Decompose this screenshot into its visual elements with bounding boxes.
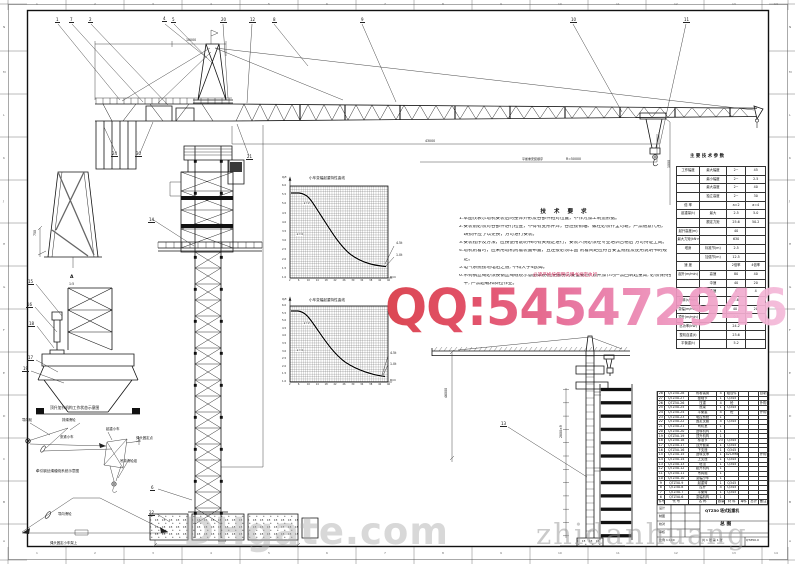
table-cell: 外购 bbox=[759, 410, 768, 415]
zone-label: B bbox=[3, 501, 5, 504]
tiny-label: a=2 bbox=[303, 322, 310, 325]
tech-notes-title: 技 术 要 求 bbox=[459, 207, 671, 215]
tiny-label: 1000 bbox=[668, 160, 671, 168]
tiny-label: 必须严格按使用说明书规定执行 bbox=[533, 274, 597, 279]
callout-number: 14 bbox=[148, 218, 155, 223]
watermark-dhgate: DHgate.com bbox=[183, 510, 449, 553]
callout-number: 7 bbox=[69, 18, 74, 23]
zone-label: M bbox=[789, 71, 792, 74]
tiny-label: Q/t bbox=[282, 298, 287, 301]
table-cell: 代 号 bbox=[664, 500, 688, 505]
table-cell: 30 bbox=[746, 192, 766, 201]
table-cell: 标准节(m) bbox=[700, 244, 727, 253]
zone-label: J bbox=[789, 200, 790, 203]
zone-label: F bbox=[789, 329, 791, 332]
tiny-label: 1.0t bbox=[396, 254, 402, 257]
table-cell: 2~ bbox=[726, 167, 746, 176]
zone-label: 2 bbox=[94, 3, 96, 6]
watermark-seller: zhidanhuang bbox=[536, 517, 748, 551]
zone-label: 10 bbox=[558, 552, 562, 555]
zone-label: E bbox=[3, 372, 5, 375]
axis-tick: 1.0 bbox=[282, 277, 286, 280]
table-cell: 备注 bbox=[759, 500, 768, 505]
table-cell: 最大 bbox=[700, 210, 727, 219]
table-cell: 高速 bbox=[700, 270, 727, 279]
zone-label: 9 bbox=[500, 552, 502, 555]
axis-tick: 42 bbox=[378, 280, 381, 282]
tiny-label: 4.5t bbox=[390, 352, 396, 355]
axis-tick: 1.0 bbox=[282, 381, 286, 384]
axis-tick: 2 bbox=[289, 384, 291, 386]
table-cell: 最大力矩(kN·m) bbox=[677, 236, 700, 245]
callout-number: 5 bbox=[171, 18, 176, 23]
tiny-label: QTZ50.0 bbox=[746, 539, 759, 542]
zone-label: 11 bbox=[616, 552, 620, 555]
axis-tick: 3.0 bbox=[282, 351, 286, 354]
callout-number: 8 bbox=[272, 18, 277, 23]
table-cell: 工作幅度 bbox=[677, 167, 700, 176]
axis-tick: 1.5 bbox=[282, 268, 286, 271]
callout-number: 1 bbox=[55, 18, 60, 23]
zone-label: 1 bbox=[36, 552, 38, 555]
zone-label: 14 bbox=[774, 3, 778, 6]
tiny-label: 主 要 技 术 参 数 bbox=[690, 155, 724, 159]
lattice-path bbox=[601, 388, 631, 537]
callout-number: 9 bbox=[360, 18, 365, 23]
tiny-label: 排绳滑轮 bbox=[62, 419, 76, 422]
table-cell: 2~ bbox=[726, 192, 746, 201]
callout-number: 11 bbox=[683, 18, 690, 23]
axis-tick: 34 bbox=[360, 280, 363, 282]
callout-number: 15 bbox=[27, 280, 34, 285]
axis-tick: 2 bbox=[289, 280, 291, 282]
table-cell: 平衡重(t) bbox=[677, 340, 700, 349]
axis-tick: 4.0 bbox=[282, 335, 286, 338]
table-cell: 速 度 bbox=[677, 262, 700, 271]
tiny-label: 绳头固定点 bbox=[136, 437, 153, 440]
zone-label: 3 bbox=[152, 552, 154, 555]
axis-tick: 5.5 bbox=[282, 313, 286, 316]
table-cell: 总计 bbox=[749, 500, 759, 505]
zone-label: 9 bbox=[500, 3, 502, 6]
data-table: 28QTZ50.28附着装置4组合件自制27QTZ50.27基础节1Q34526… bbox=[657, 391, 768, 505]
axis-tick: 26 bbox=[342, 280, 345, 282]
table-cell bbox=[677, 218, 700, 227]
table-cell: 25.6 bbox=[726, 218, 746, 227]
axis-tick: 6.0 bbox=[282, 305, 286, 308]
table-cell bbox=[746, 227, 766, 236]
callout-number: 4 bbox=[162, 17, 167, 22]
table-cell: 2~ bbox=[726, 175, 746, 184]
callout-number: 18 bbox=[28, 322, 35, 327]
zone-label: 5 bbox=[268, 3, 270, 6]
tiny-label: R/m bbox=[390, 379, 396, 382]
table-cell: 独立高度 bbox=[700, 192, 727, 201]
zone-label: 2 bbox=[94, 552, 96, 555]
tiny-label: 平衡重安装顺序 bbox=[522, 158, 543, 161]
axis-tick: 14 bbox=[316, 384, 319, 386]
zone-label: A bbox=[3, 540, 5, 543]
table-cell bbox=[677, 253, 700, 262]
table-cell: 单件 bbox=[739, 500, 749, 505]
tiny-label: 小车变幅起重特性曲线 bbox=[309, 177, 345, 181]
zone-label: E bbox=[789, 372, 791, 375]
callout-number: 17 bbox=[27, 356, 34, 361]
table-cell: 45 bbox=[746, 167, 766, 176]
lattice-path bbox=[434, 347, 627, 351]
table-cell: 2.5 bbox=[726, 244, 746, 253]
lattice-path bbox=[195, 252, 221, 524]
zone-label: 6 bbox=[326, 3, 328, 6]
zone-label: 13 bbox=[732, 3, 736, 6]
axis-tick: 3.5 bbox=[282, 343, 286, 346]
table-cell bbox=[746, 340, 766, 349]
zone-label: 7 bbox=[384, 3, 386, 6]
axis-tick: 4.5 bbox=[282, 213, 286, 216]
table-cell: 名 称 bbox=[688, 500, 717, 505]
axis-tick: 5.0 bbox=[282, 203, 286, 206]
zone-label: D bbox=[789, 415, 791, 418]
tiny-label: 1.0t bbox=[390, 363, 396, 366]
tiny-label: R=50000 bbox=[566, 158, 581, 161]
zone-label: H bbox=[3, 243, 5, 246]
zone-label: H bbox=[789, 243, 791, 246]
table-cell bbox=[700, 201, 727, 210]
zone-label: G bbox=[789, 286, 791, 289]
table-cell: a=2 bbox=[726, 201, 746, 210]
zone-label: A bbox=[789, 540, 791, 543]
table-cell: 2.5 bbox=[746, 175, 766, 184]
table-cell: 材 料 bbox=[725, 500, 739, 505]
table-cell: 5.0 bbox=[746, 210, 766, 219]
axis-tick: 2.0 bbox=[282, 366, 286, 369]
zone-label: F bbox=[3, 329, 5, 332]
axis-tick: 5.0 bbox=[282, 320, 286, 323]
zone-label: K bbox=[3, 157, 5, 160]
table-cell: 40 bbox=[746, 184, 766, 193]
zone-label: K bbox=[789, 157, 791, 160]
table-cell: 630 bbox=[726, 236, 746, 245]
table-cell: 最大幅度 bbox=[700, 167, 727, 176]
axis-tick: 14 bbox=[316, 280, 319, 282]
axis-tick: 18 bbox=[325, 384, 328, 386]
tiny-label: 顶升加节机构工作状态示意图 bbox=[50, 406, 99, 410]
axis-tick: 10 bbox=[307, 280, 310, 282]
callout-number: 24 bbox=[111, 152, 118, 157]
table-cell: 2倍率 bbox=[726, 262, 746, 271]
tiny-label: a=4 bbox=[296, 349, 303, 352]
table-cell: 起升(m/min) bbox=[677, 270, 700, 279]
zone-label: J bbox=[3, 200, 4, 203]
table-cell: 外购 bbox=[759, 453, 768, 458]
note-line: 1.本图仅表示塔机安装后的整体外形及各部件相对位置，不作为加工制造依据。 bbox=[459, 217, 671, 222]
table-cell bbox=[677, 175, 700, 184]
axis-tick: 26 bbox=[342, 384, 345, 386]
tiny-label: 绳头固定小车架上 bbox=[50, 542, 77, 545]
tiny-label: 起重小车 bbox=[106, 428, 120, 431]
note-line: 3.安装程序及方法，应按使用说明书的有关规定进行，安装人员必须经专业培训合格后 … bbox=[459, 241, 671, 246]
axis-tick: 6 bbox=[298, 384, 300, 386]
tiny-label: 小车变幅起重特性曲线 bbox=[309, 299, 345, 303]
tiny-label: 43000 bbox=[425, 140, 435, 143]
table-cell: 自制 bbox=[759, 392, 768, 397]
table-cell: 倍 率 bbox=[677, 201, 700, 210]
tiny-label: 设计 bbox=[659, 507, 665, 510]
load-chart-1 bbox=[289, 178, 392, 279]
axis-tick: 34 bbox=[360, 384, 363, 386]
table-cell: a=4 bbox=[746, 201, 766, 210]
drawing-sheet: 技 术 要 求 1.本图仅表示塔机安装后的整体外形及各部件相对位置，不作为加工制… bbox=[0, 0, 795, 564]
tiny-label: 张紧小车 bbox=[60, 436, 74, 439]
table-cell bbox=[677, 184, 700, 193]
callout-number: 19 bbox=[22, 367, 29, 372]
table-cell bbox=[700, 236, 727, 245]
table-cell bbox=[700, 227, 727, 236]
zone-label: 13 bbox=[732, 552, 736, 555]
table-cell: 42CrMo bbox=[725, 453, 739, 458]
zone-label: 11 bbox=[616, 3, 620, 6]
callout-number: 22 bbox=[148, 511, 155, 516]
table-cell bbox=[677, 192, 700, 201]
table-cell: 12.5 bbox=[726, 253, 746, 262]
axis-tick: 2.0 bbox=[282, 259, 286, 262]
tiny-label: 吊钩滑轮组 bbox=[120, 460, 137, 463]
zone-label: 12 bbox=[674, 3, 678, 6]
zone-label: C bbox=[3, 458, 5, 461]
table-cell: 起重量(t) bbox=[677, 210, 700, 219]
callout-number: 6 bbox=[150, 486, 155, 491]
axis-tick: 46 bbox=[387, 384, 390, 386]
table-cell: 数量 bbox=[717, 500, 725, 505]
axis-tick: 2.5 bbox=[282, 358, 286, 361]
note-line: 4.塔机附着时，应采用塔机附着装置布置，且连接必须牢固 附着间距应符合安全规程及… bbox=[459, 249, 671, 254]
table-cell: 5.2 bbox=[726, 340, 746, 349]
table-cell: 4倍率 bbox=[746, 262, 766, 271]
tiny-label: 750 bbox=[34, 230, 37, 236]
table-cell: 最大高度 bbox=[700, 184, 727, 193]
table-cell: 加强节(m) bbox=[700, 253, 727, 262]
callout-number: 21 bbox=[246, 155, 253, 160]
axis-tick: 6.0 bbox=[282, 185, 286, 188]
axis-tick: 4.0 bbox=[282, 222, 286, 225]
tiny-label: 10000 bbox=[186, 39, 196, 42]
zone-label: 10 bbox=[558, 3, 562, 6]
axis-tick: 38 bbox=[369, 280, 372, 282]
zone-label: M bbox=[3, 71, 6, 74]
watermark-qq: QQ:545472946 bbox=[385, 279, 787, 338]
zone-label: 3 bbox=[152, 3, 154, 6]
axis-tick: 30 bbox=[351, 280, 354, 282]
note-line: 2.安装前必须对各部件进行检查，不得有变形开焊，各连接销轴、螺栓必须齐全可靠，严… bbox=[459, 225, 671, 230]
axis-tick: 30 bbox=[351, 384, 354, 386]
zone-label: D bbox=[3, 415, 5, 418]
axis-tick: 3.5 bbox=[282, 231, 286, 234]
axis-tick: 22 bbox=[334, 280, 337, 282]
table-cell: 2~ bbox=[726, 184, 746, 193]
zone-label: C bbox=[789, 458, 791, 461]
callout-number: 13 bbox=[500, 422, 507, 427]
table-cell bbox=[700, 262, 727, 271]
tiny-label: A bbox=[70, 276, 73, 281]
table-cell: 起升高度(m) bbox=[677, 227, 700, 236]
table-cell: 80 bbox=[726, 270, 746, 279]
axis-tick: 10 bbox=[307, 384, 310, 386]
table-cell: 2.5 bbox=[726, 210, 746, 219]
zone-label: 14 bbox=[774, 552, 778, 555]
table-cell: 50.2 bbox=[746, 218, 766, 227]
callout-number: 20 bbox=[220, 18, 227, 23]
tiny-label: 导向滑轮 bbox=[58, 513, 72, 516]
table-cell: 额定力矩 bbox=[700, 218, 727, 227]
bom-table: 28QTZ50.28附着装置4组合件自制27QTZ50.27基础节1Q34526… bbox=[657, 391, 768, 505]
lattice-path bbox=[181, 172, 233, 248]
zone-label: B bbox=[789, 501, 791, 504]
tiny-label: a=4 bbox=[296, 233, 303, 236]
zone-label: G bbox=[3, 286, 5, 289]
table-cell: 塔身 bbox=[677, 244, 700, 253]
callout-number: 10 bbox=[570, 18, 577, 23]
lattice-path bbox=[236, 104, 748, 121]
axis-tick: 6 bbox=[298, 280, 300, 282]
axis-tick: 3.0 bbox=[282, 240, 286, 243]
note-line: 定。 bbox=[459, 258, 671, 263]
tiny-label: a=2 bbox=[303, 202, 310, 205]
callout-number: 16 bbox=[26, 303, 33, 308]
tiny-label: 导向轮 bbox=[22, 419, 32, 422]
callout-number: 30 bbox=[135, 152, 142, 157]
zone-label: L bbox=[3, 114, 5, 117]
load-chart-2 bbox=[289, 298, 392, 383]
zone-label: 1 bbox=[36, 3, 38, 6]
zone-label: 8 bbox=[442, 3, 444, 6]
table-cell bbox=[746, 253, 766, 262]
zone-label: 4 bbox=[210, 3, 212, 6]
note-line: 缺损件应予以更换，方可进行安装。 bbox=[459, 233, 671, 238]
axis-tick: 38 bbox=[369, 384, 372, 386]
table-cell: 最小幅度 bbox=[700, 175, 727, 184]
axis-tick: 4.5 bbox=[282, 328, 286, 331]
tiny-label: 2800×9 bbox=[560, 425, 563, 438]
zone-label: 12 bbox=[674, 552, 678, 555]
axis-tick: 5.5 bbox=[282, 194, 286, 197]
table-cell bbox=[746, 236, 766, 245]
lattice-path bbox=[158, 242, 262, 248]
tiny-label: 46000 bbox=[445, 388, 448, 398]
table-cell: 40 bbox=[726, 227, 746, 236]
table-cell bbox=[700, 340, 727, 349]
tiny-label: 4.5t bbox=[396, 242, 402, 245]
callout-number: 2 bbox=[88, 18, 93, 23]
tiny-label: QTZ50 塔式起重机 bbox=[705, 509, 739, 513]
tiny-label: Q/t bbox=[282, 176, 287, 179]
axis-tick: 18 bbox=[325, 280, 328, 282]
table-cell bbox=[746, 244, 766, 253]
tiny-label: 1:5 bbox=[69, 283, 74, 286]
axis-tick: 1.5 bbox=[282, 373, 286, 376]
table-cell: 件号 bbox=[658, 500, 665, 505]
table-cell: 40 bbox=[746, 270, 766, 279]
zone-label: N bbox=[3, 26, 5, 29]
note-line: 5.电气系统接地电阻之值, 不得大于4欧姆。 bbox=[459, 266, 671, 271]
axis-tick: 2.5 bbox=[282, 249, 286, 252]
callout-number: 12 bbox=[249, 18, 256, 23]
axis-tick: 22 bbox=[334, 384, 337, 386]
axis-tick: 42 bbox=[378, 384, 381, 386]
table-cell: 外购 bbox=[759, 401, 768, 406]
tiny-label: 牵引钢丝绳缠绕系统示意图 bbox=[36, 470, 79, 474]
zone-label: N bbox=[789, 26, 791, 29]
zone-label: L bbox=[789, 114, 791, 117]
